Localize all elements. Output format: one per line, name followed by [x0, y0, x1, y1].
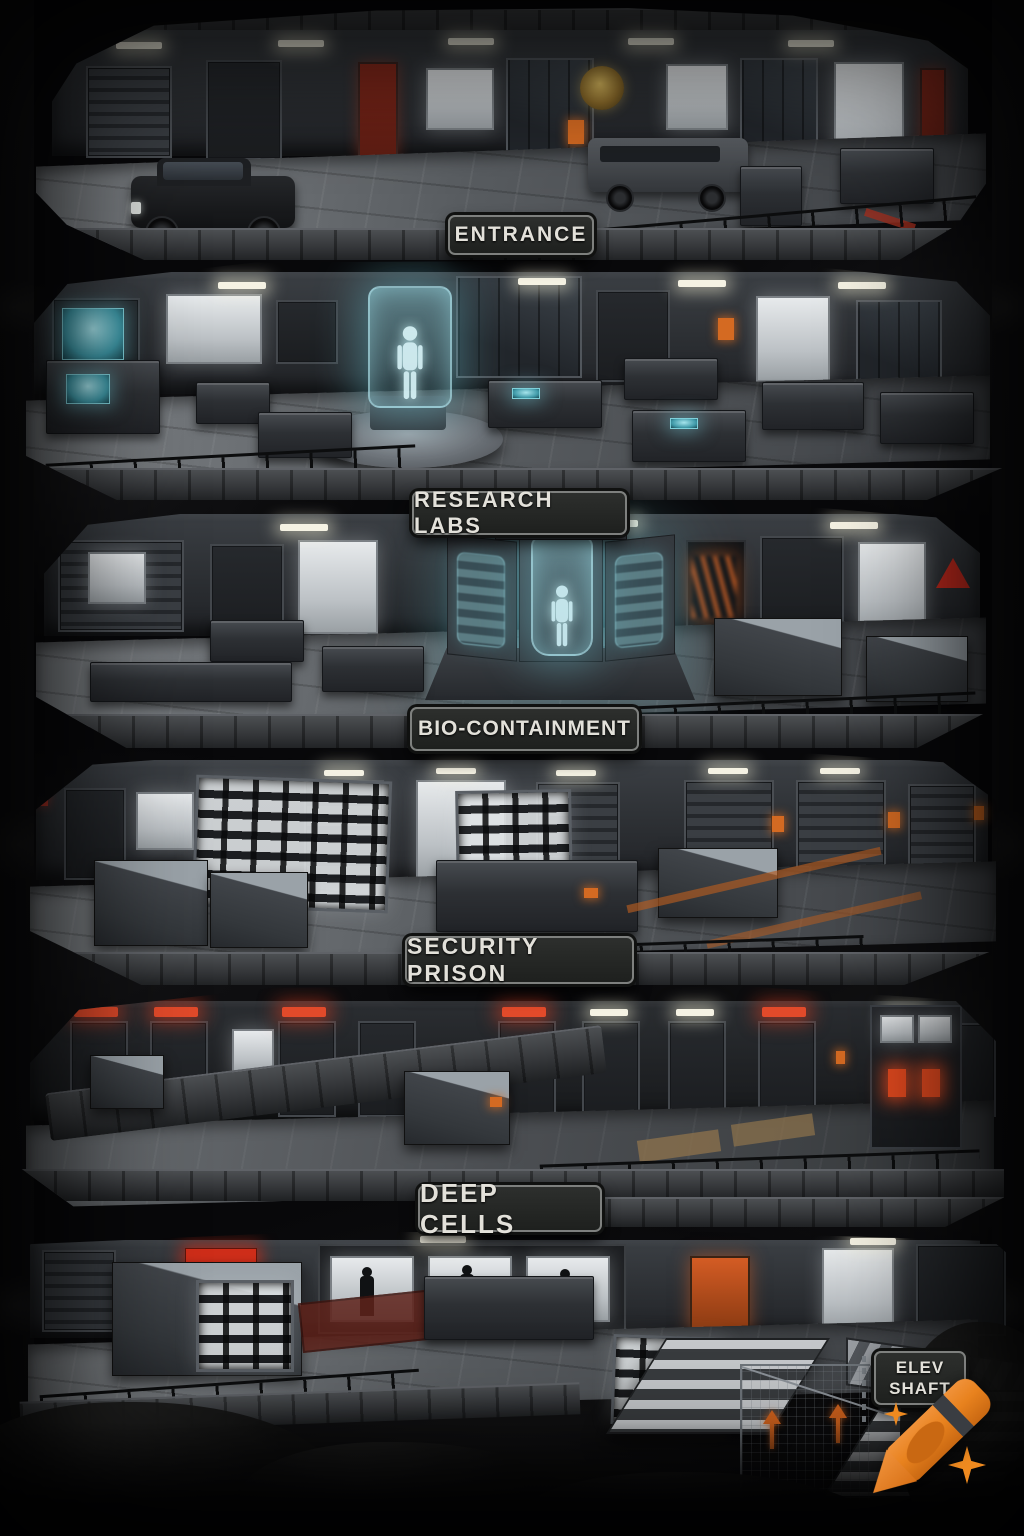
tower-window	[880, 1015, 914, 1043]
lit-window	[666, 64, 728, 130]
work-desk	[424, 1276, 594, 1340]
reception-desk	[840, 148, 934, 204]
supply-crate	[90, 1055, 164, 1109]
door-light	[676, 1009, 714, 1016]
label-deep-cells: DEEP CELLS	[418, 1185, 602, 1232]
garage-glass-wall	[456, 276, 582, 378]
ceiling-light	[830, 522, 878, 529]
equipment-crate	[714, 618, 842, 696]
lit-window	[88, 552, 146, 604]
ceiling-light	[280, 524, 328, 531]
red-alarm-light	[282, 1007, 326, 1017]
emblem-icon	[580, 66, 624, 110]
red-alarm-light	[502, 1007, 546, 1017]
ceiling-light	[788, 40, 834, 47]
warning-square	[974, 806, 984, 820]
door-light	[436, 768, 476, 774]
lit-door	[756, 296, 830, 382]
warning-panel	[718, 318, 734, 340]
work-desk	[210, 620, 304, 662]
lab-bench	[880, 392, 974, 444]
garage-door	[42, 1250, 116, 1332]
door-light	[324, 770, 364, 776]
up-arrow-icon	[829, 1404, 847, 1418]
lit-door	[822, 1248, 894, 1332]
red-alarm-light	[762, 1007, 806, 1017]
elevator-glow-light	[888, 1069, 906, 1097]
elev-shaft-line1: ELEV	[896, 1357, 944, 1378]
control-table	[436, 860, 638, 932]
specimen-tube-center	[531, 536, 593, 656]
red-strip-light	[40, 778, 48, 806]
red-alarm-light	[154, 1007, 198, 1017]
ceiling-light	[518, 278, 566, 285]
wall-screen-cyan	[62, 308, 124, 360]
tower-window	[918, 1015, 952, 1043]
ceiling-light	[838, 282, 886, 289]
console-screen	[670, 418, 698, 429]
level-research-labs	[18, 260, 1006, 500]
lit-door	[298, 540, 378, 634]
dark-window	[276, 300, 338, 364]
storage-container	[94, 860, 208, 946]
specimen-panel-left	[457, 551, 505, 648]
label-entrance: ENTRANCE	[448, 215, 594, 255]
red-alarm-light	[74, 1007, 118, 1017]
guard-window	[136, 792, 194, 850]
cell-door	[668, 1021, 726, 1117]
storage-container	[210, 872, 308, 948]
van	[588, 124, 758, 210]
machine-screen	[66, 374, 110, 404]
warning-square	[772, 816, 784, 832]
bay-opening	[206, 60, 282, 160]
specimen-figure-icon	[547, 580, 577, 654]
containment-chamber	[425, 516, 695, 700]
ceiling-light	[218, 282, 266, 289]
container-screens	[196, 1280, 294, 1372]
pillar-marker	[836, 1051, 845, 1064]
console-row	[90, 662, 292, 702]
lab-bench	[488, 380, 602, 428]
lit-window	[426, 68, 494, 130]
console-screen	[512, 388, 540, 399]
door-light	[556, 770, 596, 776]
door-light	[590, 1009, 628, 1016]
glass-doors	[506, 58, 594, 160]
lab-bench	[624, 358, 718, 400]
ceiling-light	[448, 38, 494, 45]
door-light	[820, 768, 860, 774]
orange-panel	[690, 1256, 750, 1332]
label-bio-containment: BIO-CONTAINMENT	[410, 707, 639, 751]
facility-cross-section: ENTRANCE RESEARCH LABS BIO-CONTAINMENT S…	[0, 0, 1024, 1536]
wall-alcove-light	[568, 120, 584, 144]
ceiling-light	[628, 38, 674, 45]
lit-window	[166, 294, 262, 364]
ceiling-light	[278, 40, 324, 47]
supply-crate	[404, 1071, 510, 1145]
elevator-tower	[870, 1005, 962, 1149]
hologram-figure-icon	[392, 322, 428, 406]
red-door	[358, 62, 398, 158]
warning-square	[888, 812, 900, 828]
hanging-chain	[862, 1352, 866, 1422]
hologram-tube	[368, 286, 452, 408]
label-research-labs: RESEARCH LABS	[412, 491, 627, 535]
table-tag	[584, 888, 598, 898]
ceiling-light	[850, 1238, 896, 1245]
work-desk	[322, 646, 424, 692]
lab-bench	[762, 382, 864, 430]
specimen-panel-right	[615, 551, 663, 648]
ceiling-light	[678, 280, 726, 287]
front-ledge-lower	[540, 1197, 1004, 1227]
crate-tag	[490, 1097, 502, 1107]
ceiling-light	[116, 42, 162, 49]
orange-glow-graffiti	[692, 556, 736, 618]
garage-door	[86, 66, 172, 158]
cell-door	[758, 1021, 816, 1117]
label-security-prison: SECURITY PRISON	[405, 936, 634, 984]
door-light	[708, 768, 748, 774]
elevator-glow-light	[922, 1069, 940, 1097]
